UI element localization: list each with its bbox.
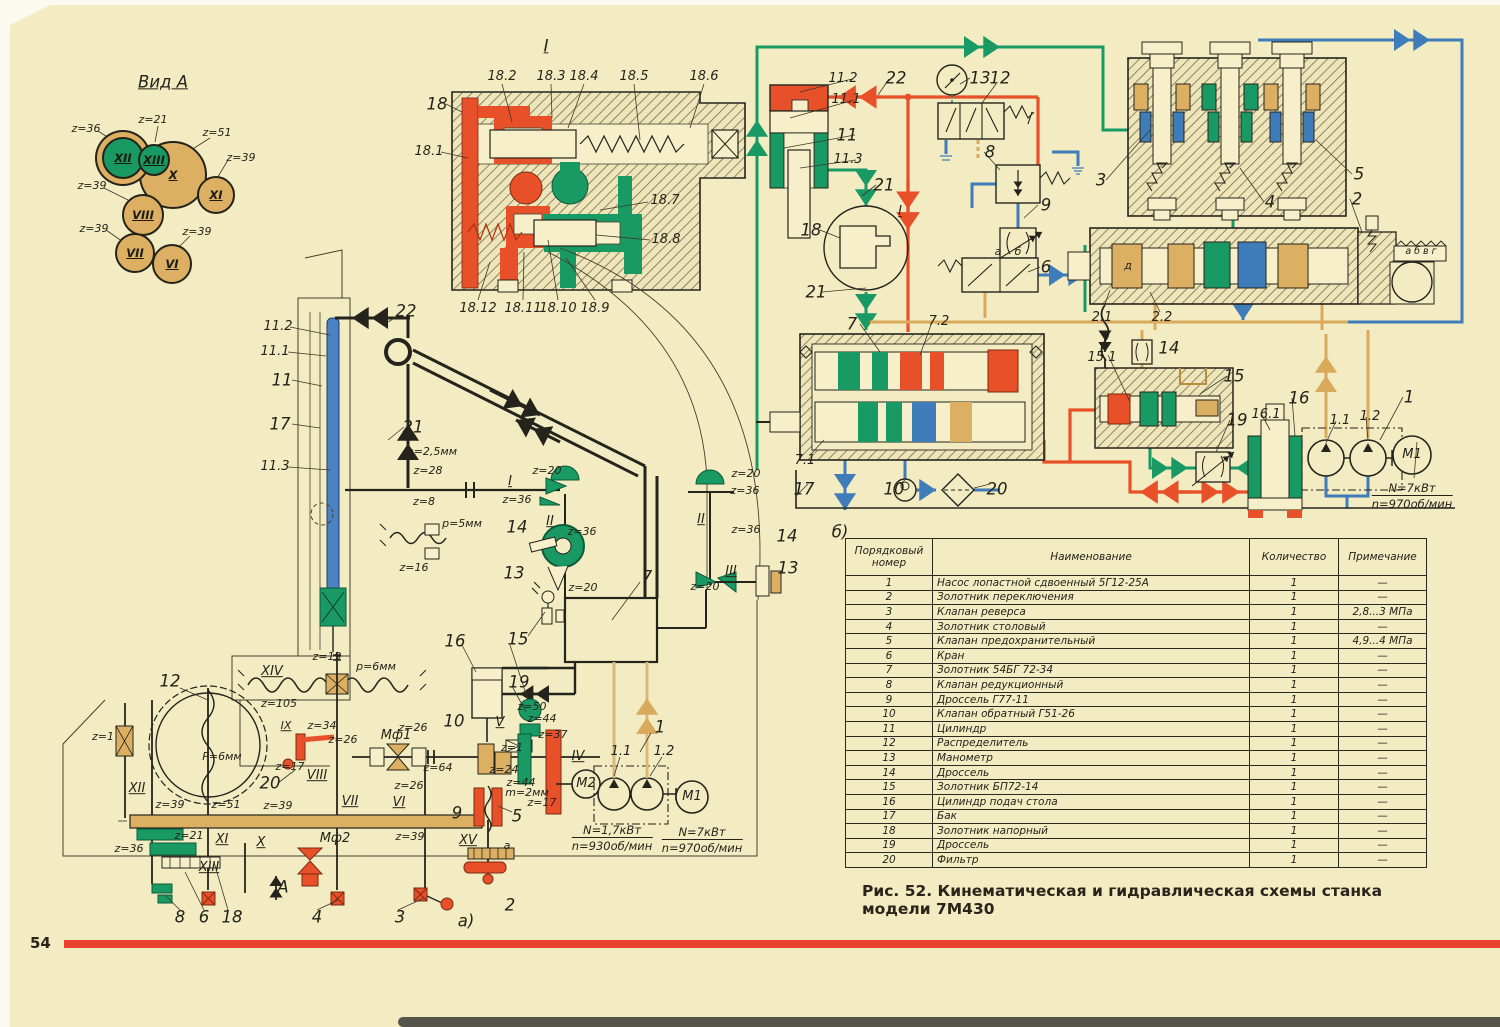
table-cell: — — [1339, 663, 1427, 678]
diagram-label: 11 — [272, 371, 293, 388]
diagram-label: 12 — [990, 69, 1011, 86]
gearbox-7 — [565, 598, 657, 662]
diagram-label: 18.7 — [651, 194, 680, 208]
diagram-label: 5 — [512, 807, 523, 824]
diagram-label: z=20 — [732, 468, 761, 480]
gear-label: XII — [114, 151, 131, 165]
diagram-label: 6 — [1041, 258, 1052, 275]
table-cell: 1 — [1250, 648, 1339, 663]
table-cell: 5 — [846, 634, 933, 649]
diagram-label: 7.1 — [795, 454, 816, 468]
table-cell: 3 — [846, 605, 933, 620]
figure-caption: Рис. 52. Кинематическая и гидравлическая… — [862, 882, 1442, 918]
table-cell: 20 — [846, 853, 933, 868]
table-row: 6Кран1— — [846, 648, 1427, 663]
diagram-label: 21 — [874, 176, 895, 193]
table-row: 9Дроссель Г77-111— — [846, 692, 1427, 707]
roller — [1392, 262, 1432, 302]
diagram-label: 11.1 — [261, 345, 290, 359]
diagram-label: 13 — [504, 564, 525, 581]
diagram-label: IV — [572, 750, 585, 764]
diagram-label: z=17 — [528, 797, 557, 809]
table-cell: 2,8...3 МПа — [1339, 605, 1427, 620]
diagram-label: z=20 — [533, 465, 562, 477]
diagram-label: z=51 — [212, 799, 241, 811]
diagram-label: 9 — [452, 804, 463, 821]
table-cell: — — [1339, 707, 1427, 722]
diagram-label: z=36 — [731, 485, 760, 497]
diagram-label: z=37 — [539, 729, 568, 741]
diagram-label: 11.3 — [834, 153, 863, 167]
diagram-label: z=105 — [261, 698, 297, 710]
gear-label: X — [169, 168, 178, 182]
table-cell: 1 — [1250, 853, 1339, 868]
table-cell: 10 — [846, 707, 933, 722]
table-row: 2Золотник переключения1— — [846, 590, 1427, 605]
diagram-label: III — [725, 565, 737, 579]
diagram-label: 2.2 — [1152, 311, 1173, 325]
diagram-label: V — [496, 716, 505, 730]
diagram-label: 3 — [1096, 171, 1107, 188]
diagram-label: 1.2 — [654, 745, 675, 759]
table-cell: 1 — [1250, 736, 1339, 751]
table-cell: 1 — [1250, 619, 1339, 634]
diagram-label: 2 — [1352, 190, 1363, 207]
table-cell: 1 — [846, 576, 933, 591]
table-cell: 1 — [1250, 780, 1339, 795]
table-cell: 1 — [1250, 824, 1339, 839]
diagram-label: z=39 — [156, 799, 185, 811]
table-row: 7Золотник 54БГ 72-341— — [846, 663, 1427, 678]
table-cell: 1 — [1250, 809, 1339, 824]
diagram-label: z=36 — [568, 526, 597, 538]
diagram-label: p=6мм — [356, 661, 396, 673]
diagram-label: а б в г — [1405, 247, 1436, 257]
diagram-label: 18.10 — [539, 302, 576, 316]
diagram-label: Мф2 — [320, 832, 351, 846]
table-cell: — — [1339, 590, 1427, 605]
table-cell: Золотник напорный — [933, 824, 1250, 839]
diagram-label: z=28 — [414, 465, 443, 477]
diagram-label: 11.2 — [829, 72, 858, 86]
diagram-label: 20 — [987, 480, 1008, 497]
diagram-label: X — [257, 836, 266, 850]
table-row: 10Клапан обратный Г51-261— — [846, 707, 1427, 722]
diagram-label: p=5мм — [442, 518, 482, 530]
diagram-label: 19 — [509, 673, 530, 690]
diagram-label: 18 — [222, 908, 243, 925]
table-cell: 13 — [846, 751, 933, 766]
gear-XIII: XIII — [138, 144, 170, 176]
detail-i-valve-section — [441, 84, 745, 300]
diagram-label: 18.12 — [459, 302, 496, 316]
pump-motor-m1-label: М1 — [1402, 448, 1422, 462]
table-cell: — — [1339, 853, 1427, 868]
table-cell: Цилиндр — [933, 721, 1250, 736]
table-row: 8Клапан редукционный1— — [846, 678, 1427, 693]
diagram-label: z=8 — [413, 496, 435, 508]
table-cell: Бак — [933, 809, 1250, 824]
diagram-label: 12 — [160, 672, 181, 689]
diagram-label: z=36 — [503, 494, 532, 506]
diagram-label: z=36 — [72, 123, 101, 135]
table-row: 17Бак1— — [846, 809, 1427, 824]
diagram-label: VIII — [307, 769, 327, 783]
table-cell: 1 — [1250, 794, 1339, 809]
diagram-label: 8 — [175, 908, 186, 925]
diagram-label: 1 — [1404, 388, 1415, 405]
table-cell: Золотник БП72-14 — [933, 780, 1250, 795]
table-header: Количество — [1250, 539, 1339, 576]
table-cell: 1 — [1250, 605, 1339, 620]
diagram-label: 19 — [1227, 411, 1248, 428]
motor-m1-spec: N=7кВтn=970об/мин — [662, 825, 743, 855]
table-cell: Цилиндр подач стола — [933, 794, 1250, 809]
table-row: 20Фильтр1— — [846, 853, 1427, 868]
diagram-label: 18.3 — [537, 70, 566, 84]
table-cell: 9 — [846, 692, 933, 707]
diagram-label: 16 — [1289, 389, 1310, 406]
scanned-page: XXIIXIIIXIVIIIVIIVI Вид Аz=36z=21z=51z=3… — [0, 0, 1500, 1027]
diagram-label: 15 — [1224, 367, 1245, 384]
diagram-label: z=21 — [139, 114, 168, 126]
table-cell: Дроссель — [933, 765, 1250, 780]
table-row: 5Клапан предохранительный14,9...4 МПа — [846, 634, 1427, 649]
diagram-label: 1.1 — [611, 745, 632, 759]
table-cell: Клапан редукционный — [933, 678, 1250, 693]
diagram-label: z=36 — [115, 843, 144, 855]
diagram-label: XV — [459, 834, 477, 848]
gear-label: XI — [209, 188, 222, 202]
table-cell: — — [1339, 824, 1427, 839]
table-cell: Насос лопастной сдвоенный 5Г12-25А — [933, 576, 1250, 591]
diagram-label: 2 — [505, 896, 516, 913]
table-cell: 1 — [1250, 663, 1339, 678]
gear-VII: VII — [115, 233, 155, 273]
diagram-label: 21 — [403, 418, 424, 435]
diagram-label: 8 — [985, 143, 996, 160]
diagram-label: 14 — [777, 527, 798, 544]
diagram-label: 11.3 — [261, 460, 290, 474]
red-ball — [510, 172, 542, 204]
gear-label: XIII — [143, 153, 165, 167]
diagram-label: z=26 — [399, 722, 428, 734]
detail-i-title: I — [544, 37, 549, 54]
diagram-label: A — [277, 878, 288, 895]
table-row: 15Золотник БП72-141— — [846, 780, 1427, 795]
diagram-label: 18.11 — [504, 302, 541, 316]
diagram-label: 14 — [1159, 339, 1180, 356]
diagram-label: 7 — [642, 568, 653, 585]
table-cell: 7 — [846, 663, 933, 678]
diagram-label: 18.8 — [652, 233, 681, 247]
diagram-label: XIII — [199, 861, 219, 875]
gear-VIII: VIII — [122, 194, 164, 236]
table-cell: — — [1339, 678, 1427, 693]
diagram-label: z=20 — [569, 582, 598, 594]
table-cell: — — [1339, 576, 1427, 591]
diagram-label: z=20 — [691, 581, 720, 593]
table-cell: 11 — [846, 721, 933, 736]
table-cell: — — [1339, 619, 1427, 634]
table-cell: 1 — [1250, 692, 1339, 707]
motor-m1-label: М1 — [682, 790, 702, 804]
cylinder-11 — [770, 85, 828, 238]
diagram-label: 15 — [508, 630, 529, 647]
diagram-label: XII — [129, 782, 146, 796]
table-cell: 1 — [1250, 721, 1339, 736]
table-cell: 1 — [1250, 678, 1339, 693]
diagram-label: 5 — [1354, 165, 1365, 182]
block-7 — [756, 334, 1044, 460]
table-row: 1Насос лопастной сдвоенный 5Г12-25А1— — [846, 576, 1427, 591]
table-header: Наименование — [933, 539, 1250, 576]
diagram-label: z=1 — [501, 742, 523, 754]
diagram-label: z=39 — [227, 152, 256, 164]
gear-label: VI — [165, 257, 178, 271]
table-row: 13Манометр1— — [846, 751, 1427, 766]
table-cell: 6 — [846, 648, 933, 663]
pump-motor-m1-spec: N=7кВтn=970об/мин — [1372, 481, 1453, 511]
view-a-title: Вид А — [138, 73, 188, 90]
spool-land — [490, 130, 576, 158]
gear-XI: XI — [197, 176, 235, 214]
diagram-label: VII — [342, 795, 359, 809]
diagram-label: 11.2 — [264, 320, 293, 334]
diagram-label: I — [508, 475, 512, 489]
table-cell: 1 — [1250, 590, 1339, 605]
table-cell: 1 — [1250, 634, 1339, 649]
table-cell: — — [1339, 765, 1427, 780]
diagram-label: z=39 — [78, 180, 107, 192]
gear-label: VII — [126, 246, 143, 260]
motor-m2-label: М2 — [576, 777, 596, 791]
table-cell: 8 — [846, 678, 933, 693]
table-cell: — — [1339, 794, 1427, 809]
table-cell: Манометр — [933, 751, 1250, 766]
diagram-label: 1 — [655, 718, 666, 735]
table-cell: 17 — [846, 809, 933, 824]
diagram-label: z=39 — [80, 223, 109, 235]
diagram-label: z=44 — [528, 713, 557, 725]
table-cell: 4,9...4 МПа — [1339, 634, 1427, 649]
diagram-label: б — [1015, 246, 1022, 258]
table-row: 11Цилиндр1— — [846, 721, 1427, 736]
table-row: 16Цилиндр подач стола1— — [846, 794, 1427, 809]
diagram-label: 16.1 — [1252, 408, 1281, 422]
table-cell: — — [1339, 780, 1427, 795]
table-header: Примечание — [1339, 539, 1427, 576]
table-cell: — — [1339, 721, 1427, 736]
table-cell: — — [1339, 648, 1427, 663]
table-cell: Дроссель — [933, 838, 1250, 853]
diagram-label: 18 — [427, 95, 448, 112]
diagram-label: 10 — [884, 480, 905, 497]
diagram-label: 20 — [260, 774, 281, 791]
diagram-label: 7 — [847, 315, 858, 332]
scan-bottom-shadow — [398, 1017, 1500, 1027]
table-cell: 2 — [846, 590, 933, 605]
valve-block-3-4-5 — [1128, 42, 1346, 220]
diagram-label: II — [546, 515, 554, 529]
table-cell: 1 — [1250, 765, 1339, 780]
diagram-label: 17 — [270, 415, 291, 432]
table-cell: 19 — [846, 838, 933, 853]
table-header: Порядковый номер — [846, 539, 933, 576]
motor-m2-spec: N=1,7кВтn=930об/мин — [572, 823, 653, 853]
shaft-ends — [202, 888, 427, 905]
block-15 — [1095, 368, 1233, 448]
diagram-label: z=39 — [183, 226, 212, 238]
hydraulic-scheme — [756, 40, 1462, 518]
diagram-label: 17 — [794, 480, 815, 497]
diagram-label: m=2,5мм — [403, 446, 457, 458]
diagram-label: z=21 — [175, 830, 204, 842]
diagram-label: I — [898, 205, 902, 219]
diagram-label: 7.2 — [929, 315, 950, 329]
diagram-label: z=64 — [424, 762, 453, 774]
scheme-a-label: а) — [458, 912, 475, 929]
diagram-label: II — [697, 513, 705, 527]
diagram-label: z=39 — [264, 800, 293, 812]
diagram-label: z=36 — [732, 524, 761, 536]
table-cell: Фильтр — [933, 853, 1250, 868]
table-cell: 18 — [846, 824, 933, 839]
diagram-label: P=6мм — [202, 751, 241, 763]
screw-rod — [327, 318, 339, 608]
page-number: 54 — [30, 934, 51, 952]
table-row: 19Дроссель1— — [846, 838, 1427, 853]
throttle-19 — [1196, 452, 1230, 482]
main-shaft — [130, 815, 482, 828]
table-cell: 1 — [1250, 751, 1339, 766]
diagram-label: 22 — [886, 69, 907, 86]
parts-table: Порядковый номерНаименованиеКоличествоПр… — [845, 538, 1427, 868]
table-row: 12Распределитель1— — [846, 736, 1427, 751]
diagram-artwork — [0, 0, 1500, 1027]
diagram-label: 18.2 — [488, 70, 517, 84]
parts-table-header: Порядковый номерНаименованиеКоличествоПр… — [846, 539, 1427, 576]
diagram-label: 1.1 — [1330, 414, 1351, 428]
diagram-label: 18.4 — [570, 70, 599, 84]
diagram-label: z=19 — [313, 651, 342, 663]
table-cell: 14 — [846, 765, 933, 780]
diagram-label: z=17 — [276, 761, 305, 773]
diagram-label: 18.9 — [581, 302, 610, 316]
table-cell: Клапан предохранительный — [933, 634, 1250, 649]
table-cell: Золотник переключения — [933, 590, 1250, 605]
diagram-label: 18.1 — [415, 145, 444, 159]
table-row: 14Дроссель1— — [846, 765, 1427, 780]
diagram-label: 10 — [444, 712, 465, 729]
diagram-label: 13 — [778, 559, 799, 576]
diagram-label: a — [504, 840, 511, 852]
diagram-label: z=51 — [203, 127, 232, 139]
diagram-label: z=34 — [308, 720, 337, 732]
diagram-label: z=26 — [395, 780, 424, 792]
gear-VI: VI — [152, 244, 192, 284]
table-cell: 1 — [1250, 707, 1339, 722]
diagram-label: IX — [281, 720, 292, 732]
diagram-label: 3 — [395, 908, 406, 925]
diagram-label: а — [995, 246, 1002, 258]
table-row: 4Золотник столовый1— — [846, 619, 1427, 634]
table-cell: Клапан обратный Г51-26 — [933, 707, 1250, 722]
table-cell: Золотник столовый — [933, 619, 1250, 634]
table-cell: 4 — [846, 619, 933, 634]
diagram-label: XIV — [261, 665, 283, 679]
diagram-label: 18.5 — [620, 70, 649, 84]
throttle-14 — [1132, 340, 1152, 364]
diagram-label: 18 — [801, 221, 822, 238]
red-channel — [462, 98, 478, 288]
diagram-label: 9 — [1041, 196, 1052, 213]
red-divider-rule — [64, 940, 1500, 948]
diagram-label: 13 — [970, 69, 991, 86]
diagram-label: VI — [393, 796, 406, 810]
diagram-label: 11.1 — [832, 93, 861, 107]
table-cell: — — [1339, 692, 1427, 707]
diagram-label: д — [1124, 260, 1132, 272]
parts-table-body: 1Насос лопастной сдвоенный 5Г12-25А1—2Зо… — [846, 576, 1427, 868]
gear-label: VIII — [132, 208, 154, 222]
diagram-label: 21 — [806, 283, 827, 300]
table-cell: 1 — [1250, 838, 1339, 853]
diagram-label: 18.6 — [690, 70, 719, 84]
table-cell: 15 — [846, 780, 933, 795]
diagram-label: z=24 — [490, 764, 519, 776]
table-cell: Дроссель Г77-11 — [933, 692, 1250, 707]
table-cell: 12 — [846, 736, 933, 751]
diagram-label: z=50 — [518, 701, 547, 713]
table-cell: Клапан реверса — [933, 605, 1250, 620]
diagram-label: 4 — [1265, 193, 1276, 210]
swivel-22 — [386, 340, 410, 364]
table-cell: — — [1339, 751, 1427, 766]
clutch-mf2 — [298, 848, 322, 874]
table-cell: Распределитель — [933, 736, 1250, 751]
table-cell: 16 — [846, 794, 933, 809]
table-cell: — — [1339, 736, 1427, 751]
table-cell: — — [1339, 809, 1427, 824]
table-cell: — — [1339, 838, 1427, 853]
diagram-label: z=1 — [92, 731, 114, 743]
diagram-label: 11 — [837, 126, 858, 143]
diagram-label: z=39 — [396, 831, 425, 843]
table-cell: Кран — [933, 648, 1250, 663]
diagram-label: 14 — [507, 518, 528, 535]
diagram-label: 4 — [312, 908, 323, 925]
diagram-label: z=26 — [329, 734, 358, 746]
diagram-label: 2.1 — [1092, 311, 1113, 325]
diagram-label: XI — [216, 833, 229, 847]
diagram-label: 15.1 — [1088, 351, 1117, 365]
diagram-label: 6 — [199, 908, 210, 925]
diagram-label: 22 — [396, 302, 417, 319]
diagram-label: z=16 — [400, 562, 429, 574]
table-row: 18Золотник напорный1— — [846, 824, 1427, 839]
table-cell: Золотник 54БГ 72-34 — [933, 663, 1250, 678]
table-row: 3Клапан реверса12,8...3 МПа — [846, 605, 1427, 620]
diagram-label: 1.2 — [1360, 410, 1381, 424]
table-cell: 1 — [1250, 576, 1339, 591]
diagram-label: 16 — [445, 632, 466, 649]
